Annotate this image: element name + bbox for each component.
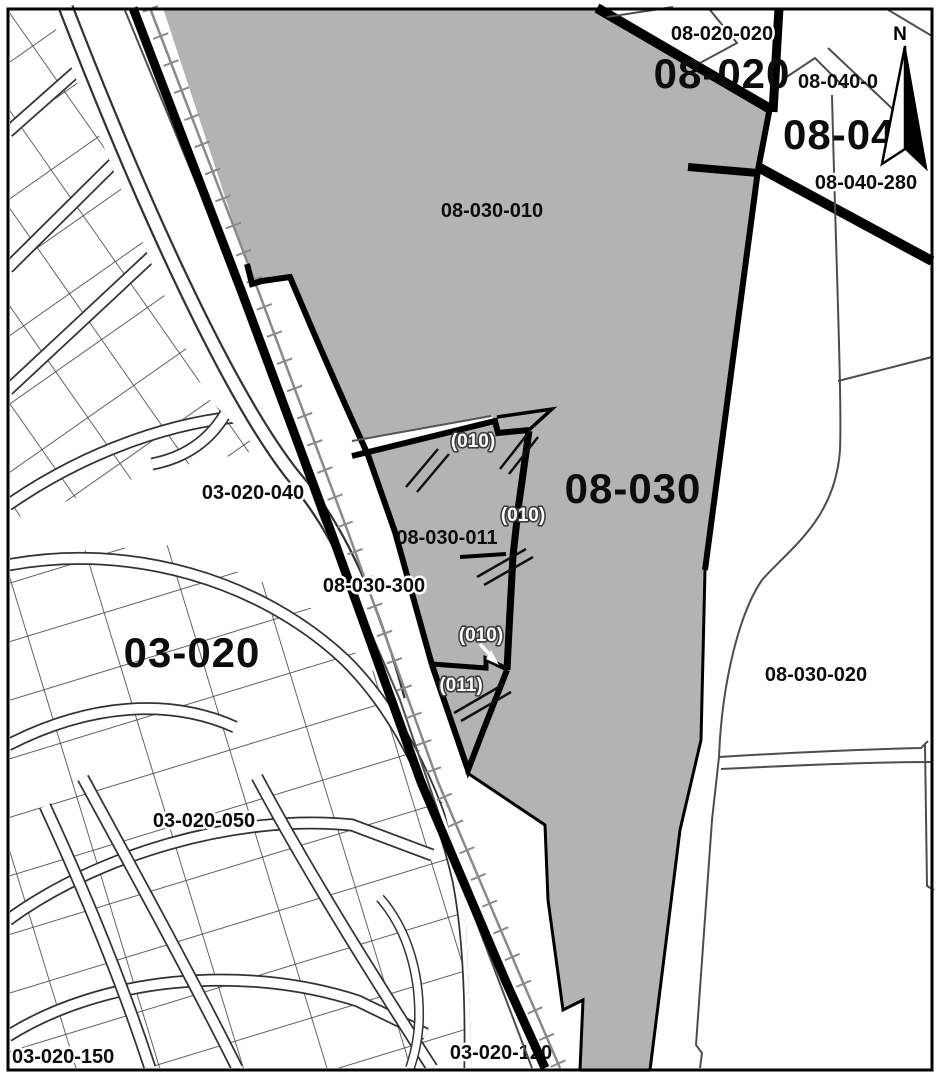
parcel-label-08-040-0: 08-040-0 [798, 71, 878, 93]
north-label: N [893, 24, 907, 45]
marker-010-top: (010) [451, 431, 495, 452]
parcel-label-03-020-150: 03-020-150 [12, 1046, 114, 1068]
marker-010-bottom: (010) [459, 625, 503, 646]
cadastral-map: 03-020-120 [0, 0, 941, 1080]
parcel-label-08-030-300: 08-030-300 [323, 575, 425, 597]
parcel-label-08-020-020: 08-020-020 [671, 23, 773, 45]
zone-label-08-030: 08-030 [565, 465, 702, 512]
parcel-label-08-030-010: 08-030-010 [441, 200, 543, 222]
parcel-label-03-020-040: 03-020-040 [202, 482, 304, 504]
zone-label-08-020: 08-020 [654, 50, 791, 97]
parcel-label-03-020-050: 03-020-050 [153, 810, 255, 832]
zone-label-03-020: 03-020 [124, 629, 261, 676]
marker-011: (011) [439, 675, 482, 696]
parcel-label-08-030-020: 08-030-020 [765, 664, 867, 686]
marker-010-middle: (010) [501, 505, 545, 526]
zone-label-08-04: 08-04 [783, 111, 895, 158]
parcel-label-08-040-280: 08-040-280 [815, 172, 917, 194]
parcel-label-08-030-011: 08-030-011 [396, 527, 497, 549]
map-canvas: 03-020-120 [0, 0, 941, 1080]
